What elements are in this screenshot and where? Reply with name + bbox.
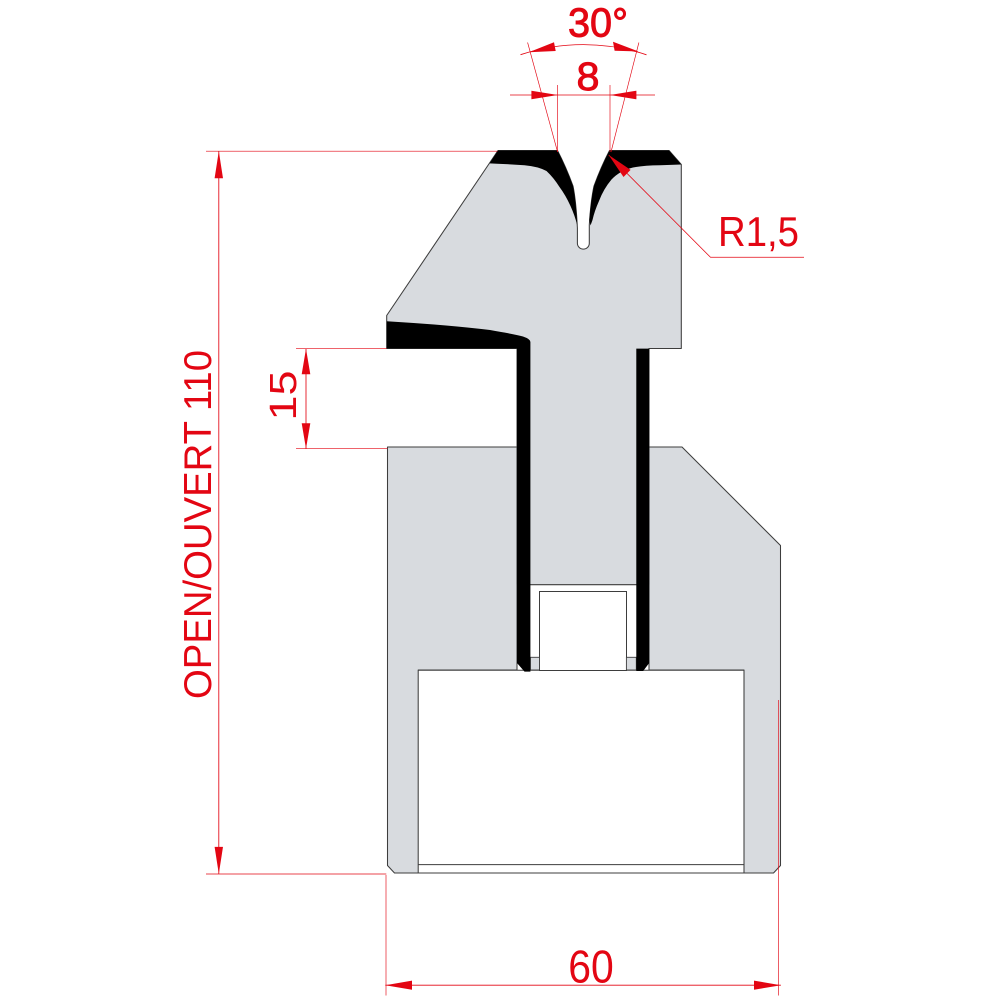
svg-text:8: 8 (577, 55, 600, 99)
svg-text:R1,5: R1,5 (718, 208, 799, 255)
svg-text:60: 60 (568, 941, 614, 993)
svg-text:30°: 30° (568, 0, 628, 46)
svg-text:OPEN/OUVERT 110: OPEN/OUVERT 110 (177, 350, 220, 699)
svg-text:15: 15 (263, 371, 305, 421)
